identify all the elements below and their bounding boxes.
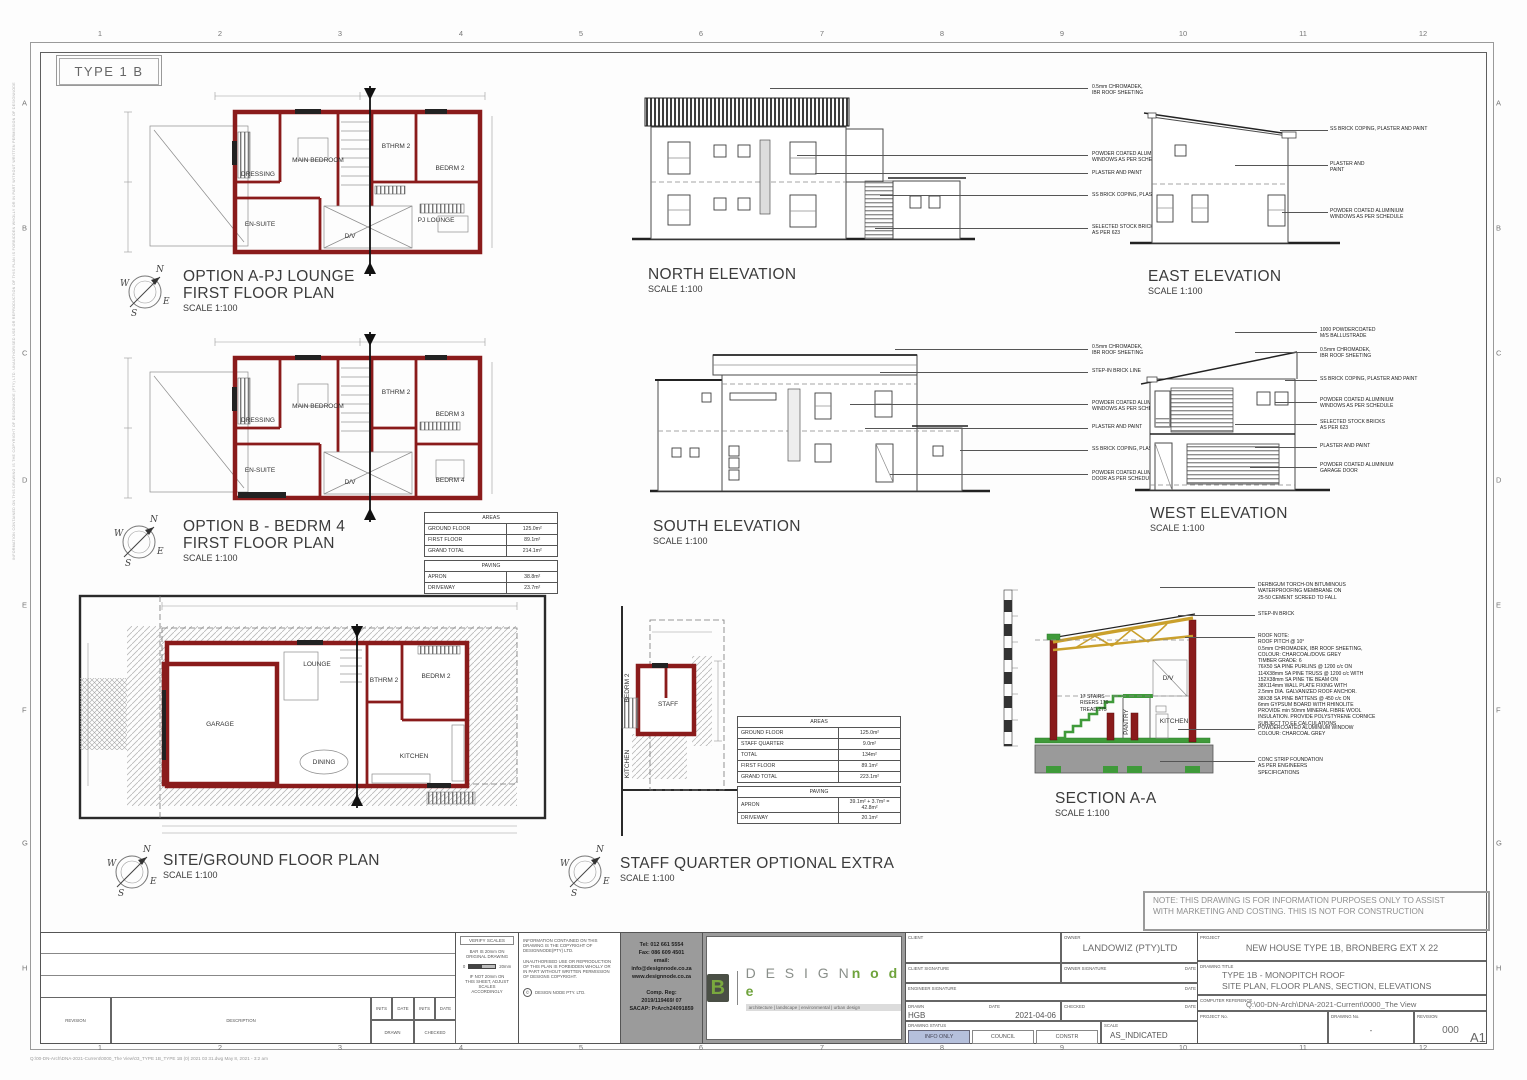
east-elevation-drawing [1130,88,1350,273]
compass-e: E [602,877,610,887]
room-label: BEDRM 4 [436,477,465,484]
drawn-value: HGB [908,1011,925,1020]
west-elevation: 1000 POWDERCOATED M/S BALLUSTRADE 0.5mm … [1135,322,1490,537]
copyright-box: INFORMATION CONTAINED ON THIS DRAWING IS… [519,933,621,1043]
ground-title-text: SITE/GROUND FLOOR PLAN [163,852,380,869]
compass-n: N [155,265,165,275]
west-callout: POWDER COATED ALUMINIUM WINDOWS AS PER S… [1320,397,1450,410]
grid-col-label: 11 [1299,29,1307,38]
room-label: BEDRM 2 [624,673,631,702]
grid-col-label: 5 [579,29,583,38]
information-note: NOTE: THIS DRAWING IS FOR INFORMATION PU… [1143,891,1490,931]
section-callout: POWDERCOATED ALUMINIUM WINDOW COLOUR: CH… [1258,725,1458,738]
logo-tagline: architecture | landscape | environmental… [746,1004,901,1011]
grid-col-label: 1 [98,1043,102,1052]
option-a-floor-plan: DRESSING MAIN BEDROOM BTHRM 2 BEDRM 2 EN… [120,86,500,276]
option-b-scale: SCALE 1:100 [183,553,345,563]
drawn-label: DRAWN [908,1004,924,1009]
grid-row-label: C [22,349,27,358]
grid-col-label: 6 [699,1043,703,1052]
compass-w: W [107,859,117,869]
checked-label: CHECKED [1064,1004,1085,1009]
room-label: KITCHEN [400,753,429,760]
ground-title: SITE/GROUND FLOOR PLAN SCALE 1:100 [163,852,380,880]
type-label-box: TYPE 1 B [56,55,162,86]
option-b-title: OPTION B - BEDRM 4FIRST FLOOR PLAN SCALE… [183,518,345,563]
grid-col-label: 3 [338,29,342,38]
room-label: KITCHEN [624,749,631,778]
compass-n: N [595,845,605,855]
room-label: GARAGE [206,721,234,728]
scale-value: AS_INDICATED [1110,1031,1168,1040]
margin-copyright-text: INFORMATION CONTAINED ON THIS DRAWING IS… [12,82,16,560]
grid-row-label: H [22,964,27,973]
contact-sacap: SACAP: PrArch24091859 [621,1005,702,1013]
client-signature-label: CLIENT SIGNATURE [908,966,949,971]
grid-col-label: 7 [820,29,824,38]
client-label: CLIENT [908,935,923,940]
revision-col-label: REVISION [65,1018,86,1023]
section-a-a: D/V PANTRY KITCHEN 17 STAIRS RISERS 170 … [1000,576,1490,840]
west-callout: POWDER COATED ALUMINIUM GARAGE DOOR [1320,462,1450,475]
compass-e: E [156,547,164,557]
areas-title: AREAS [425,513,558,524]
east-callout: PLASTER AND PAINT [1330,161,1450,174]
grid-row-label: H [1496,964,1501,973]
compass-staff: N W S E [558,842,612,898]
grid-col-label: 6 [699,29,703,38]
grid-row-label: G [22,839,28,848]
staff-title: STAFF QUARTER OPTIONAL EXTRA SCALE 1:100 [620,855,894,883]
room-label: D/V [345,479,357,486]
project-block: PROJECT NEW HOUSE TYPE 1B, BRONBERG EXT … [1198,933,1486,1043]
west-callout: SS BRICK COPING, PLASTER AND PAINT [1320,376,1450,382]
staff-quarter-plan: STAFF BEDRM 2 KITCHEN [612,606,742,836]
computer-reference-value: Q:\00-DN-Arch\DNA-2021-Current\0000_The … [1246,1000,1416,1009]
room-label: PJ LOUNGE [418,217,456,224]
grid-col-label: 9 [1060,1043,1064,1052]
room-label: DRESSING [241,171,275,178]
grid-col-label: 12 [1419,29,1427,38]
compass-s: S [571,889,577,898]
grid-col-label: 1 [98,29,102,38]
engineer-signature-label: ENGINEER SIGNATURE [908,986,956,991]
option-b-floor-plan: DRESSING MAIN BEDROOM BTHRM 2 BEDRM 3 EN… [120,332,500,522]
drawing-title-line2: SITE PLAN, FLOOR PLANS, SECTION, ELEVATI… [1222,981,1431,991]
status-info-only: INFO ONLY [908,1030,970,1044]
designnode-logo-mark: B [707,974,729,1002]
compass-n: N [142,845,152,855]
drawn-date-value: 2021-04-06 [1015,1011,1056,1020]
project-label: PROJECT [1200,935,1220,940]
room-label: BTHRM 2 [382,143,411,150]
room-label: BTHRM 2 [382,389,411,396]
room-label: MAIN BEDROOM [292,403,344,410]
option-a-scale: SCALE 1:100 [183,303,355,313]
room-label: STAFF [658,701,678,708]
staff-scale: SCALE 1:100 [620,873,894,883]
verify-scales-title: VERIFY SCALES [460,936,514,945]
project-no-label: PROJECT No. [1200,1014,1228,1019]
grid-col-label: 5 [579,1043,583,1052]
revision-table: REVISION DESCRIPTION INITS DATE INITS DA… [41,933,456,1043]
option-b-title-line2: FIRST FLOOR PLAN [183,535,335,552]
section-title: SECTION A-A SCALE 1:100 [1055,790,1156,818]
south-elevation-drawing [650,338,995,508]
areas-table-staff: AREAS GROUND FLOOR125.0m² STAFF QUARTER9… [737,716,901,783]
paving-table-staff: PAVING APRON39.1m² + 3.7m² = 42.8m² DRIV… [737,786,901,824]
section-callout: STEP-IN BRICK [1258,611,1458,617]
grid-row-label: A [1496,99,1501,108]
file-reference-text: Q:\00-DN-Arch\DNA-2021-Current\0000_The … [30,1056,268,1061]
grid-col-label: 10 [1179,1043,1187,1052]
compass-ground: N W S E [105,842,159,898]
drawing-title-label: DRAWING TITLE [1200,964,1233,969]
grid-col-label: 10 [1179,29,1187,38]
verify-scales-box: VERIFY SCALES BAR IS 20mm ON ORIGINAL DR… [456,933,519,1043]
owner-label: OWNER [1064,935,1080,940]
room-label: BTHRM 2 [370,677,399,684]
grid-row-label: B [1496,224,1501,233]
compass-e: E [149,877,157,887]
drawing-no-label: DRAWING No. [1331,1014,1360,1019]
contact-box: Tel: 012 661 5554 Fax: 086 609 4501 emai… [621,933,703,1043]
client-block: CLIENT OWNER LANDOWIZ (PTY)LTD CLIENT SI… [906,933,1198,1043]
grid-row-label: D [22,476,27,485]
scale-label: SCALE [1104,1023,1118,1028]
south-title: SOUTH ELEVATION SCALE 1:100 [653,518,801,546]
west-callout: 0.5mm CHROMADEK, IBR ROOF SHEETING [1320,347,1450,360]
room-label: BEDRM 2 [436,165,465,172]
compass-w: W [114,529,124,539]
grid-col-label: 3 [338,1043,342,1052]
option-a-title: OPTION A-PJ LOUNGEFIRST FLOOR PLAN SCALE… [183,268,355,313]
grid-col-label: 4 [459,29,463,38]
option-a-title-line1: OPTION A-PJ LOUNGE [183,268,355,285]
contact-fax: Fax: 086 609 4501 [621,949,702,957]
section-callout: ROOF NOTE: ROOF PITCH @ 10° 0.5mm CHROMA… [1258,633,1458,727]
option-b-title-line1: OPTION B - BEDRM 4 [183,518,345,535]
room-label: KITCHEN [1160,718,1189,725]
status-constr: CONSTR [1036,1030,1098,1044]
grid-row-label: F [1496,706,1501,715]
grid-col-label: 7 [820,1043,824,1052]
paving-title: PAVING [425,561,558,572]
north-elevation-drawing [630,78,980,263]
north-elevation: 0.5mm CHROMADEK, IBR ROOF SHEETING POWDE… [630,78,1190,318]
compass-s: S [125,559,131,568]
room-label: PANTRY [1123,708,1130,734]
section-callout: DERBIGUM TORCH-ON BITUMINOUS WATERPROOFI… [1258,582,1458,601]
west-callout: 1000 POWDERCOATED M/S BALLUSTRADE [1320,327,1450,340]
option-a-title-line2: FIRST FLOOR PLAN [183,285,335,302]
room-label: LOUNGE [303,661,331,668]
areas-table-option-b: AREAS GROUND FLOOR125.0m² FIRST FLOOR89.… [424,512,558,557]
owner-name: LANDOWIZ (PTY)LTD [1062,943,1198,954]
contact-email: info@designnode.co.za [621,965,702,973]
project-name: NEW HOUSE TYPE 1B, BRONBERG EXT X 22 [1198,943,1486,953]
grid-row-label: G [1496,839,1502,848]
type-label: TYPE 1 B [74,64,143,79]
compass-e: E [162,297,170,307]
stair-note: 17 STAIRS RISERS 170 TREAD 275 [1080,694,1120,713]
computer-reference-label: COMPUTER REFERENCE [1200,998,1252,1003]
west-title: WEST ELEVATION SCALE 1:100 [1150,505,1288,533]
grid-row-label: D [1496,476,1501,485]
compass-option-b: N W S E [112,512,166,568]
staff-title-text: STAFF QUARTER OPTIONAL EXTRA [620,855,894,872]
grid-col-label: 11 [1299,1043,1307,1052]
grid-col-label: 2 [218,29,222,38]
description-col-label: DESCRIPTION [226,1018,255,1023]
compass-n: N [149,515,159,525]
ground-scale: SCALE 1:100 [163,870,380,880]
owner-signature-label: OWNER SIGNATURE [1064,966,1106,971]
grid-row-label: C [1496,349,1501,358]
grid-col-label: 2 [218,1043,222,1052]
contact-reg: 2019/119469/ 07 [621,997,702,1005]
compass-s: S [118,889,124,898]
drawing-title-line1: TYPE 1B - MONOPITCH ROOF [1222,970,1345,980]
grid-row-label: F [22,706,27,715]
room-label: D/V [345,233,357,240]
contact-email-label: email: [621,957,702,965]
south-elevation: 0.5mm CHROMADEK, IBR ROOF SHEETING STEP-… [650,338,1210,550]
logo-box: B D E S I G Nn o d e architecture | land… [703,933,906,1043]
drawing-sheet: 1 2 3 4 5 6 7 8 9 10 11 12 1 2 3 4 5 6 7… [0,0,1527,1080]
grid-col-label: 8 [940,29,944,38]
contact-reg-label: Comp. Reg: [621,989,702,997]
room-label: BEDRM 3 [436,411,465,418]
paving-table-option-b: PAVING APRON38.8m² DRIVEWAY23.7m² [424,560,558,594]
paving-title: PAVING [738,787,901,798]
room-label: BEDRM 2 [422,673,451,680]
logo-design-text: D E S I G N [746,965,852,981]
grid-row-label: A [22,99,27,108]
drawing-status-label: DRAWING STATUS [908,1023,946,1028]
grid-row-label: E [22,601,27,610]
room-label: MAIN BEDROOM [292,157,344,164]
east-callout: POWDER COATED ALUMINIUM WINDOWS AS PER S… [1330,208,1450,221]
contact-web: www.designnode.co.za [621,973,702,981]
status-council: COUNCIL [972,1030,1034,1044]
section-callout: CONC STRIP FOUNDATION AS PER ENGINEERS S… [1258,757,1458,776]
grid-col-label: 4 [459,1043,463,1052]
west-callout: PLASTER AND PAINT [1320,443,1450,449]
site-ground-floor-plan: GARAGE LOUNGE BTHRM 2 BEDRM 2 DINING KIT… [72,590,557,840]
grid-col-label: 9 [1060,29,1064,38]
north-title: NORTH ELEVATION SCALE 1:100 [648,266,796,294]
room-label: D/V [1163,675,1175,682]
east-title: EAST ELEVATION SCALE 1:100 [1148,268,1281,296]
grid-row-label: B [22,224,27,233]
compass-s: S [131,309,137,318]
drawing-no-value: - [1329,1026,1413,1035]
compass-w: W [120,279,130,289]
west-callout: SELECTED STOCK BRICKS AS PER 623 [1320,419,1450,432]
east-elevation: SS BRICK COPING, PLASTER AND PAINT PLAST… [1130,88,1485,318]
grid-col-label: 8 [940,1043,944,1052]
compass-w: W [560,859,570,869]
east-callout: SS BRICK COPING, PLASTER AND PAINT [1330,126,1450,132]
paper-size-label: A1 [1470,1030,1486,1045]
grid-col-label: 12 [1419,1043,1427,1052]
compass-option-a: N W S E [118,262,172,318]
grid-row-label: E [1496,601,1501,610]
room-label: EN-SUITE [245,221,276,228]
revision-label: REVISION [1417,1014,1438,1019]
room-label: EN-SUITE [245,467,276,474]
room-label: DRESSING [241,417,275,424]
title-block: REVISION DESCRIPTION INITS DATE INITS DA… [40,932,1487,1044]
room-label: DINING [313,759,336,766]
contact-tel: Tel: 012 661 5554 [621,941,702,949]
copyright-icon: © [523,988,532,997]
areas-title: AREAS [738,717,901,728]
